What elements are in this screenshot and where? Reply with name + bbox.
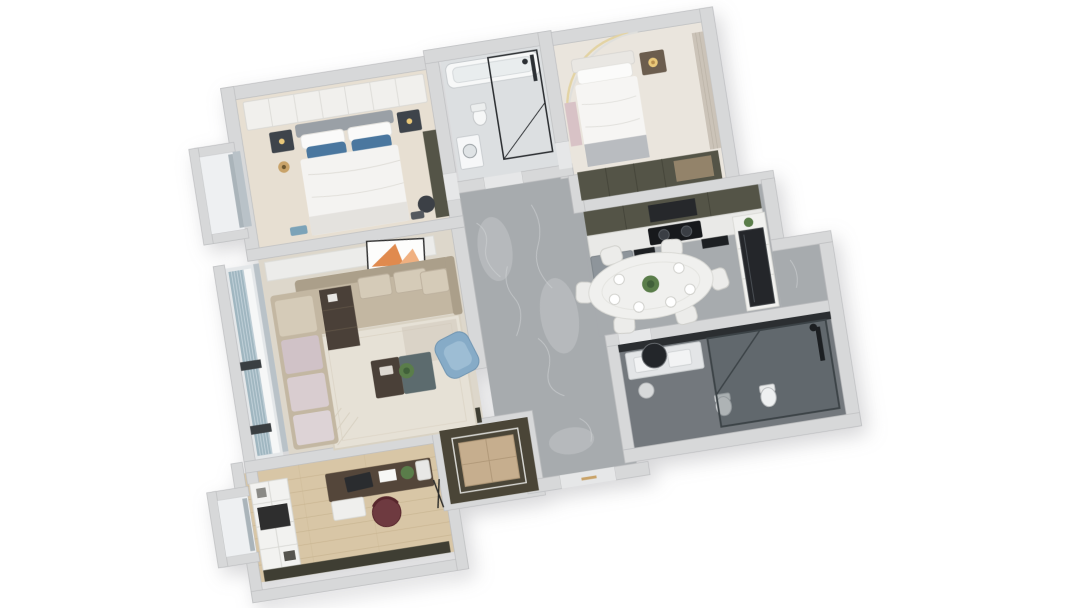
coffee-table-dark-half: [370, 357, 404, 399]
side-passage-floor: [772, 244, 828, 308]
chaise-cushion-mauve-1: [281, 335, 324, 375]
chaise-cushion-beige: [274, 295, 317, 337]
shelf-item-2: [283, 550, 296, 561]
chaise-blanket: [293, 410, 335, 446]
wall-bath2-top-left: [605, 333, 620, 346]
desk-printer: [415, 460, 431, 481]
apartment-plan: [144, 0, 874, 607]
side-table-decor: [327, 293, 338, 302]
floorplan-svg: [0, 0, 1080, 608]
study-wall-tv: [257, 503, 291, 530]
chaise-cushion-mauve-2: [287, 372, 330, 412]
shelf-item-1: [256, 487, 267, 498]
room-entry-closet: [439, 417, 539, 504]
floorplan-render: [0, 0, 1080, 608]
bath2-sink-right: [667, 349, 692, 368]
